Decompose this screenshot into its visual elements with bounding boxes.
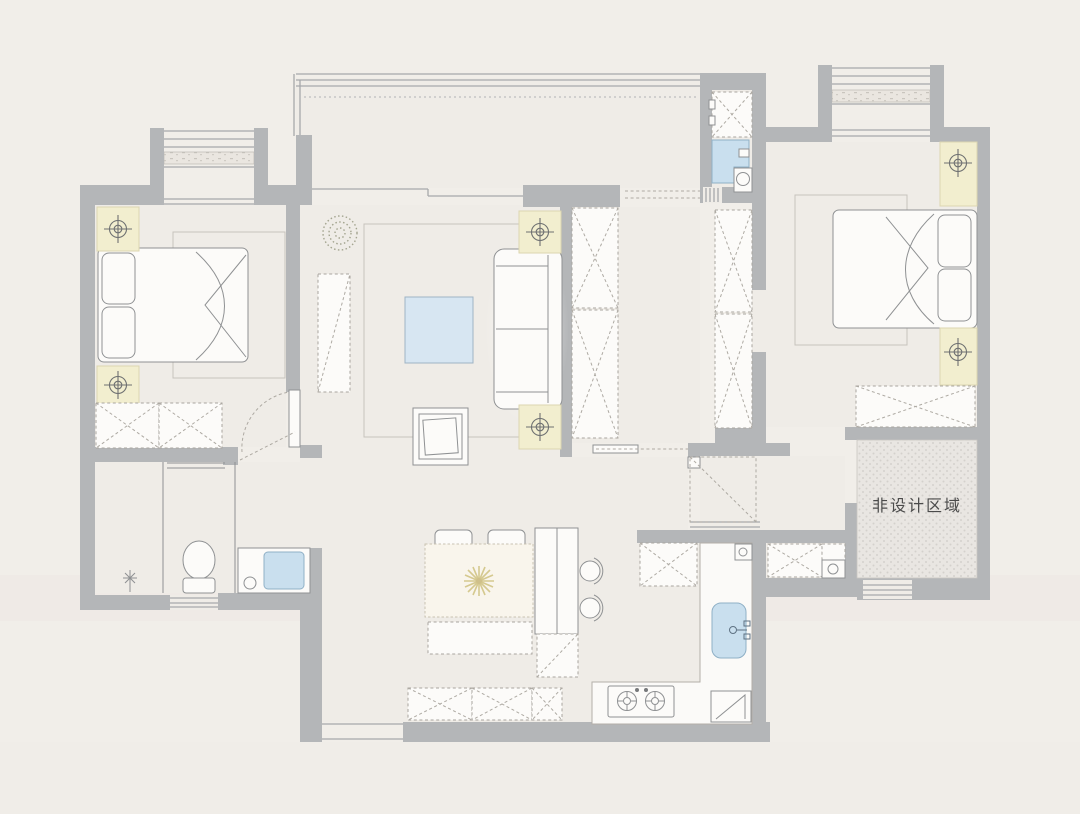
bedroom-right-door-opening: [752, 290, 766, 352]
bathroom-vanity: [238, 548, 310, 593]
kitchen-sink: [712, 603, 750, 658]
wardrobe-left: [96, 403, 222, 448]
toilet: [183, 541, 215, 593]
bathroom-top-door-threshold: [703, 187, 722, 203]
coffee-table: [405, 297, 473, 363]
non-design-area: 非设计区域: [857, 440, 977, 578]
pillow: [102, 253, 135, 304]
niche-cabinets: [768, 544, 845, 578]
island-lower-cabinet: [537, 634, 578, 677]
non-design-window: [863, 580, 912, 599]
table-flower-icon: [464, 566, 494, 596]
sink: [264, 552, 304, 589]
balcony-sliding-door: [312, 189, 700, 198]
pillow: [102, 307, 135, 358]
pillow: [938, 215, 971, 267]
tv-cabinet: [413, 408, 468, 465]
shower: [709, 92, 752, 137]
sofa: [494, 249, 562, 409]
floor-plan-drawing: 非设计区域: [0, 0, 1080, 814]
floor-plan: 非设计区域: [0, 0, 1080, 814]
door-leaf: [289, 390, 300, 447]
bed-left: [98, 248, 248, 362]
balcony-floor: [296, 78, 700, 188]
side-cabinet: [318, 274, 350, 392]
entry-floor: [700, 456, 845, 530]
bathroom-left-window: [170, 595, 218, 610]
stove: [608, 686, 674, 717]
wardrobe-right: [856, 386, 975, 427]
bottom-cabinets: [408, 688, 562, 720]
entry-threshold: [322, 724, 403, 739]
bed-right: [833, 210, 977, 328]
island-cabinet: [535, 528, 578, 634]
non-design-area-label: 非设计区域: [872, 496, 962, 515]
fridge: [711, 691, 751, 722]
bay-window-right: [820, 68, 942, 136]
toilet: [734, 168, 752, 192]
pillow: [938, 269, 971, 321]
tv-wall-cabinets: [572, 208, 618, 438]
bench: [428, 622, 532, 654]
kitchen-wall-cabinet: [640, 543, 697, 586]
bathroom-top: [709, 92, 752, 192]
